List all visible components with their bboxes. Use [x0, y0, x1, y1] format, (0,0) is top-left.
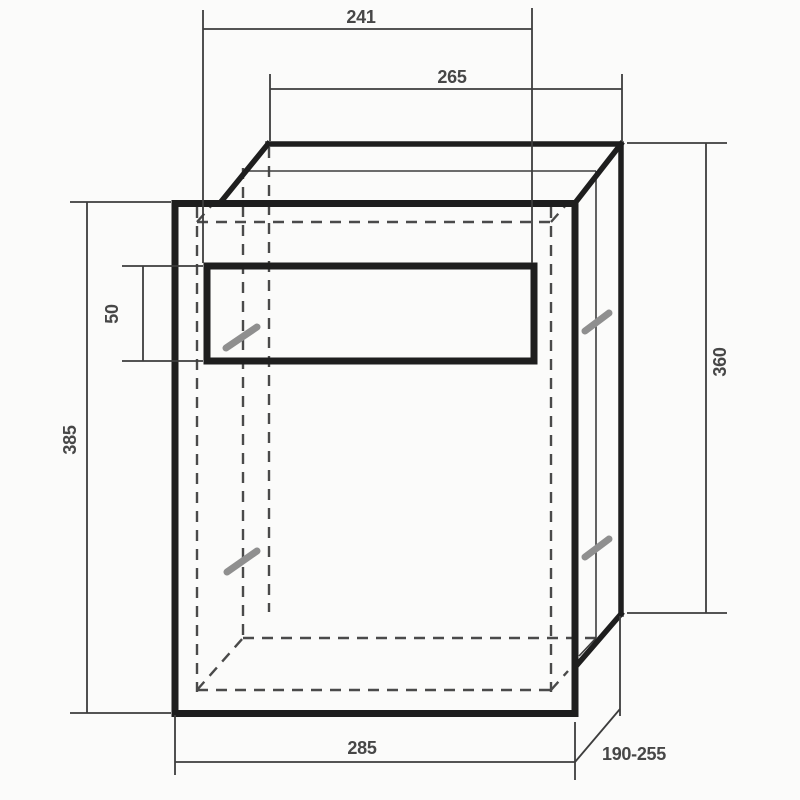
- dim-panel-height-label: 385: [60, 425, 80, 454]
- dim-body-width-label: 265: [437, 67, 466, 87]
- dim-body-height-label: 360: [710, 347, 730, 376]
- drawing-background: [0, 0, 800, 800]
- dim-slot-width-label: 241: [346, 7, 375, 27]
- letterbox-dimension-drawing: 241 265 50 385: [0, 0, 800, 800]
- dim-panel-width-label: 285: [347, 738, 376, 758]
- dim-body-depth-label: 190-255: [602, 744, 666, 764]
- dim-slot-height-label: 50: [102, 304, 122, 324]
- technical-drawing: 241 265 50 385: [0, 0, 800, 800]
